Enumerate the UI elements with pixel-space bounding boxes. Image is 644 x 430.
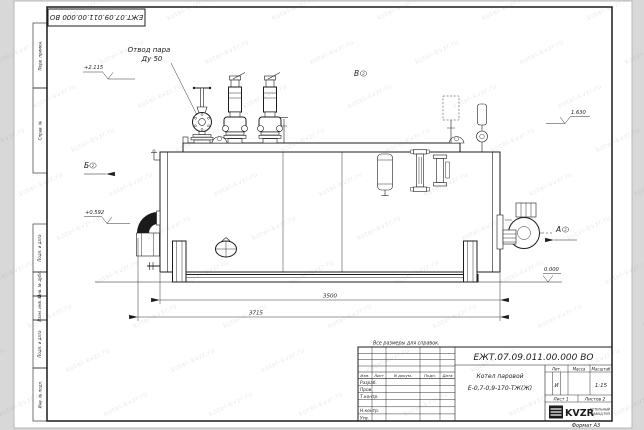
callout-line1: Отвод пара [128,46,171,54]
col-massa: Масса [573,367,586,372]
col-list: Лист [373,373,385,378]
sheets-total: Листов 2 [584,397,606,403]
foot-right [464,241,478,282]
boiler-drawing-svg: Перв. примен. Справ. № Подп. и дата Инв.… [0,0,644,430]
col-data: Дата [441,373,453,378]
col-lit: Лит. [551,367,561,372]
row-tkontr: Т.контр. [360,394,379,400]
elevation-text: +0.592 [85,210,104,216]
product-name: Котел паровой [476,373,523,380]
margin-label: Подп. и дата [37,234,42,262]
callout-line2: Ду 50 [141,55,163,63]
dimension-text: 3500 [323,294,337,300]
corner-stamp-number: ЕЖТ.07.09.011.00.000 ВО [49,13,143,21]
separator-vessel [378,154,393,196]
margin-label: Перв. примен. [38,40,43,70]
margin-label: Взам. инв. № [37,294,42,321]
view-letter: А [555,225,561,234]
format-label: Формат А3 [572,423,600,429]
view-letter: В [354,69,359,78]
lit-value: И [554,383,558,389]
dimension-text: 3715 [249,311,263,317]
col-masshtab: Масштаб [591,367,611,372]
sheet-number: Лист 1 [552,397,569,403]
company-line1: КОТЕЛЬНЫЙ [590,407,611,412]
margin-label: Подп. и дата [37,330,42,358]
margin-label: Инв. № дубл. [37,270,42,297]
view-letter: Б [84,161,89,170]
row-utv: Утв. [360,415,369,421]
margin-label: Справ. № [38,121,43,140]
col-doc: N докум. [394,373,412,378]
scale-value: 1:15 [595,383,608,389]
row-razrab: Разраб. [360,380,377,386]
title-designation: ЕЖТ.07.09.011.00.000 ВО [473,353,593,363]
reference-dims-note: Все размеры для справок. [373,341,440,347]
drawing-sheet: Перв. примен. Справ. № Подп. и дата Инв.… [0,0,644,430]
elevation-text: 1.630 [571,110,587,116]
company-line2: ЗАВОД РЭП [592,412,611,416]
margin-label: Инв. № подл. [38,381,43,409]
elevation-text: 0.000 [544,267,560,273]
foot-left [173,241,187,282]
row-nkontr: Н.контр. [360,408,379,414]
product-code: Е-0,7-0,9-170-ТЖ(Ж) [468,385,532,392]
col-izm: Изм. [360,373,369,378]
elevation-text: +2.115 [84,65,104,71]
row-prov: Пров. [360,387,373,393]
skid [183,275,478,283]
col-podp: Подп. [424,373,436,378]
